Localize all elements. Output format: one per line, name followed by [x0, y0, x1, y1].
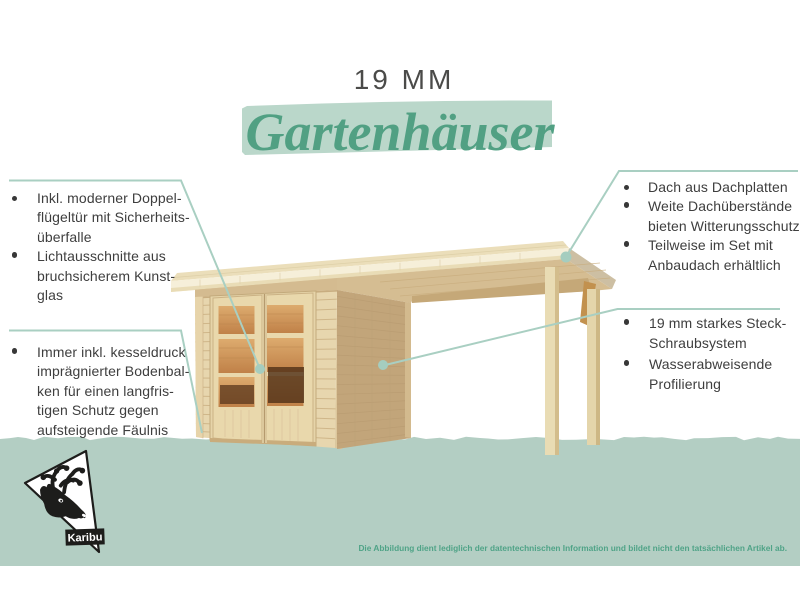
svg-text:Die Abbildung dient lediglich: Die Abbildung dient lediglich der datent…: [358, 543, 787, 553]
svg-text:Karibu: Karibu: [67, 531, 102, 544]
